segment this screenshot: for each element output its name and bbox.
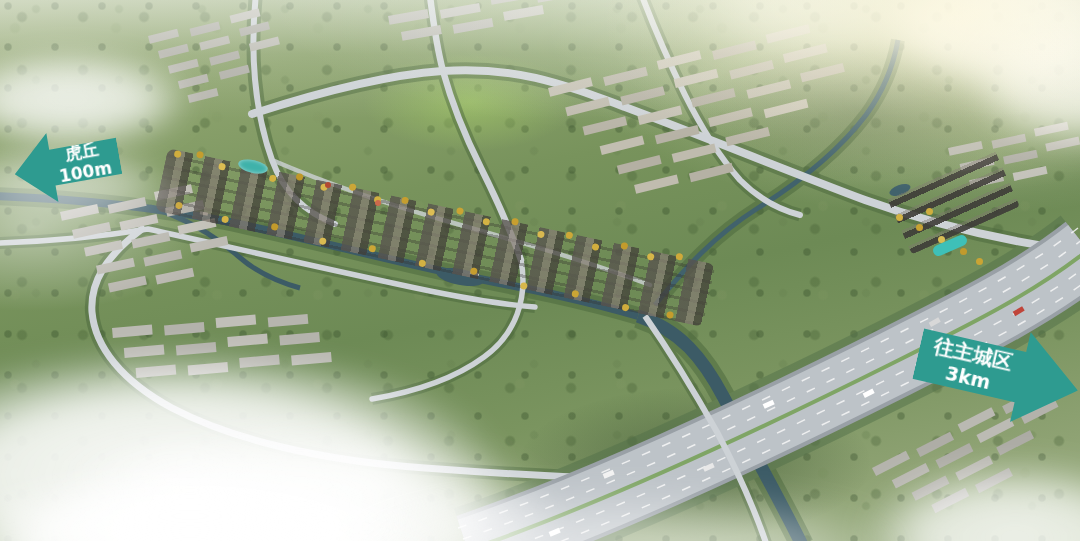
aerial-masterplan-rendering: 虎丘 100m 往主城区 3km <box>0 0 1080 541</box>
sunlight-glow <box>0 0 1080 541</box>
